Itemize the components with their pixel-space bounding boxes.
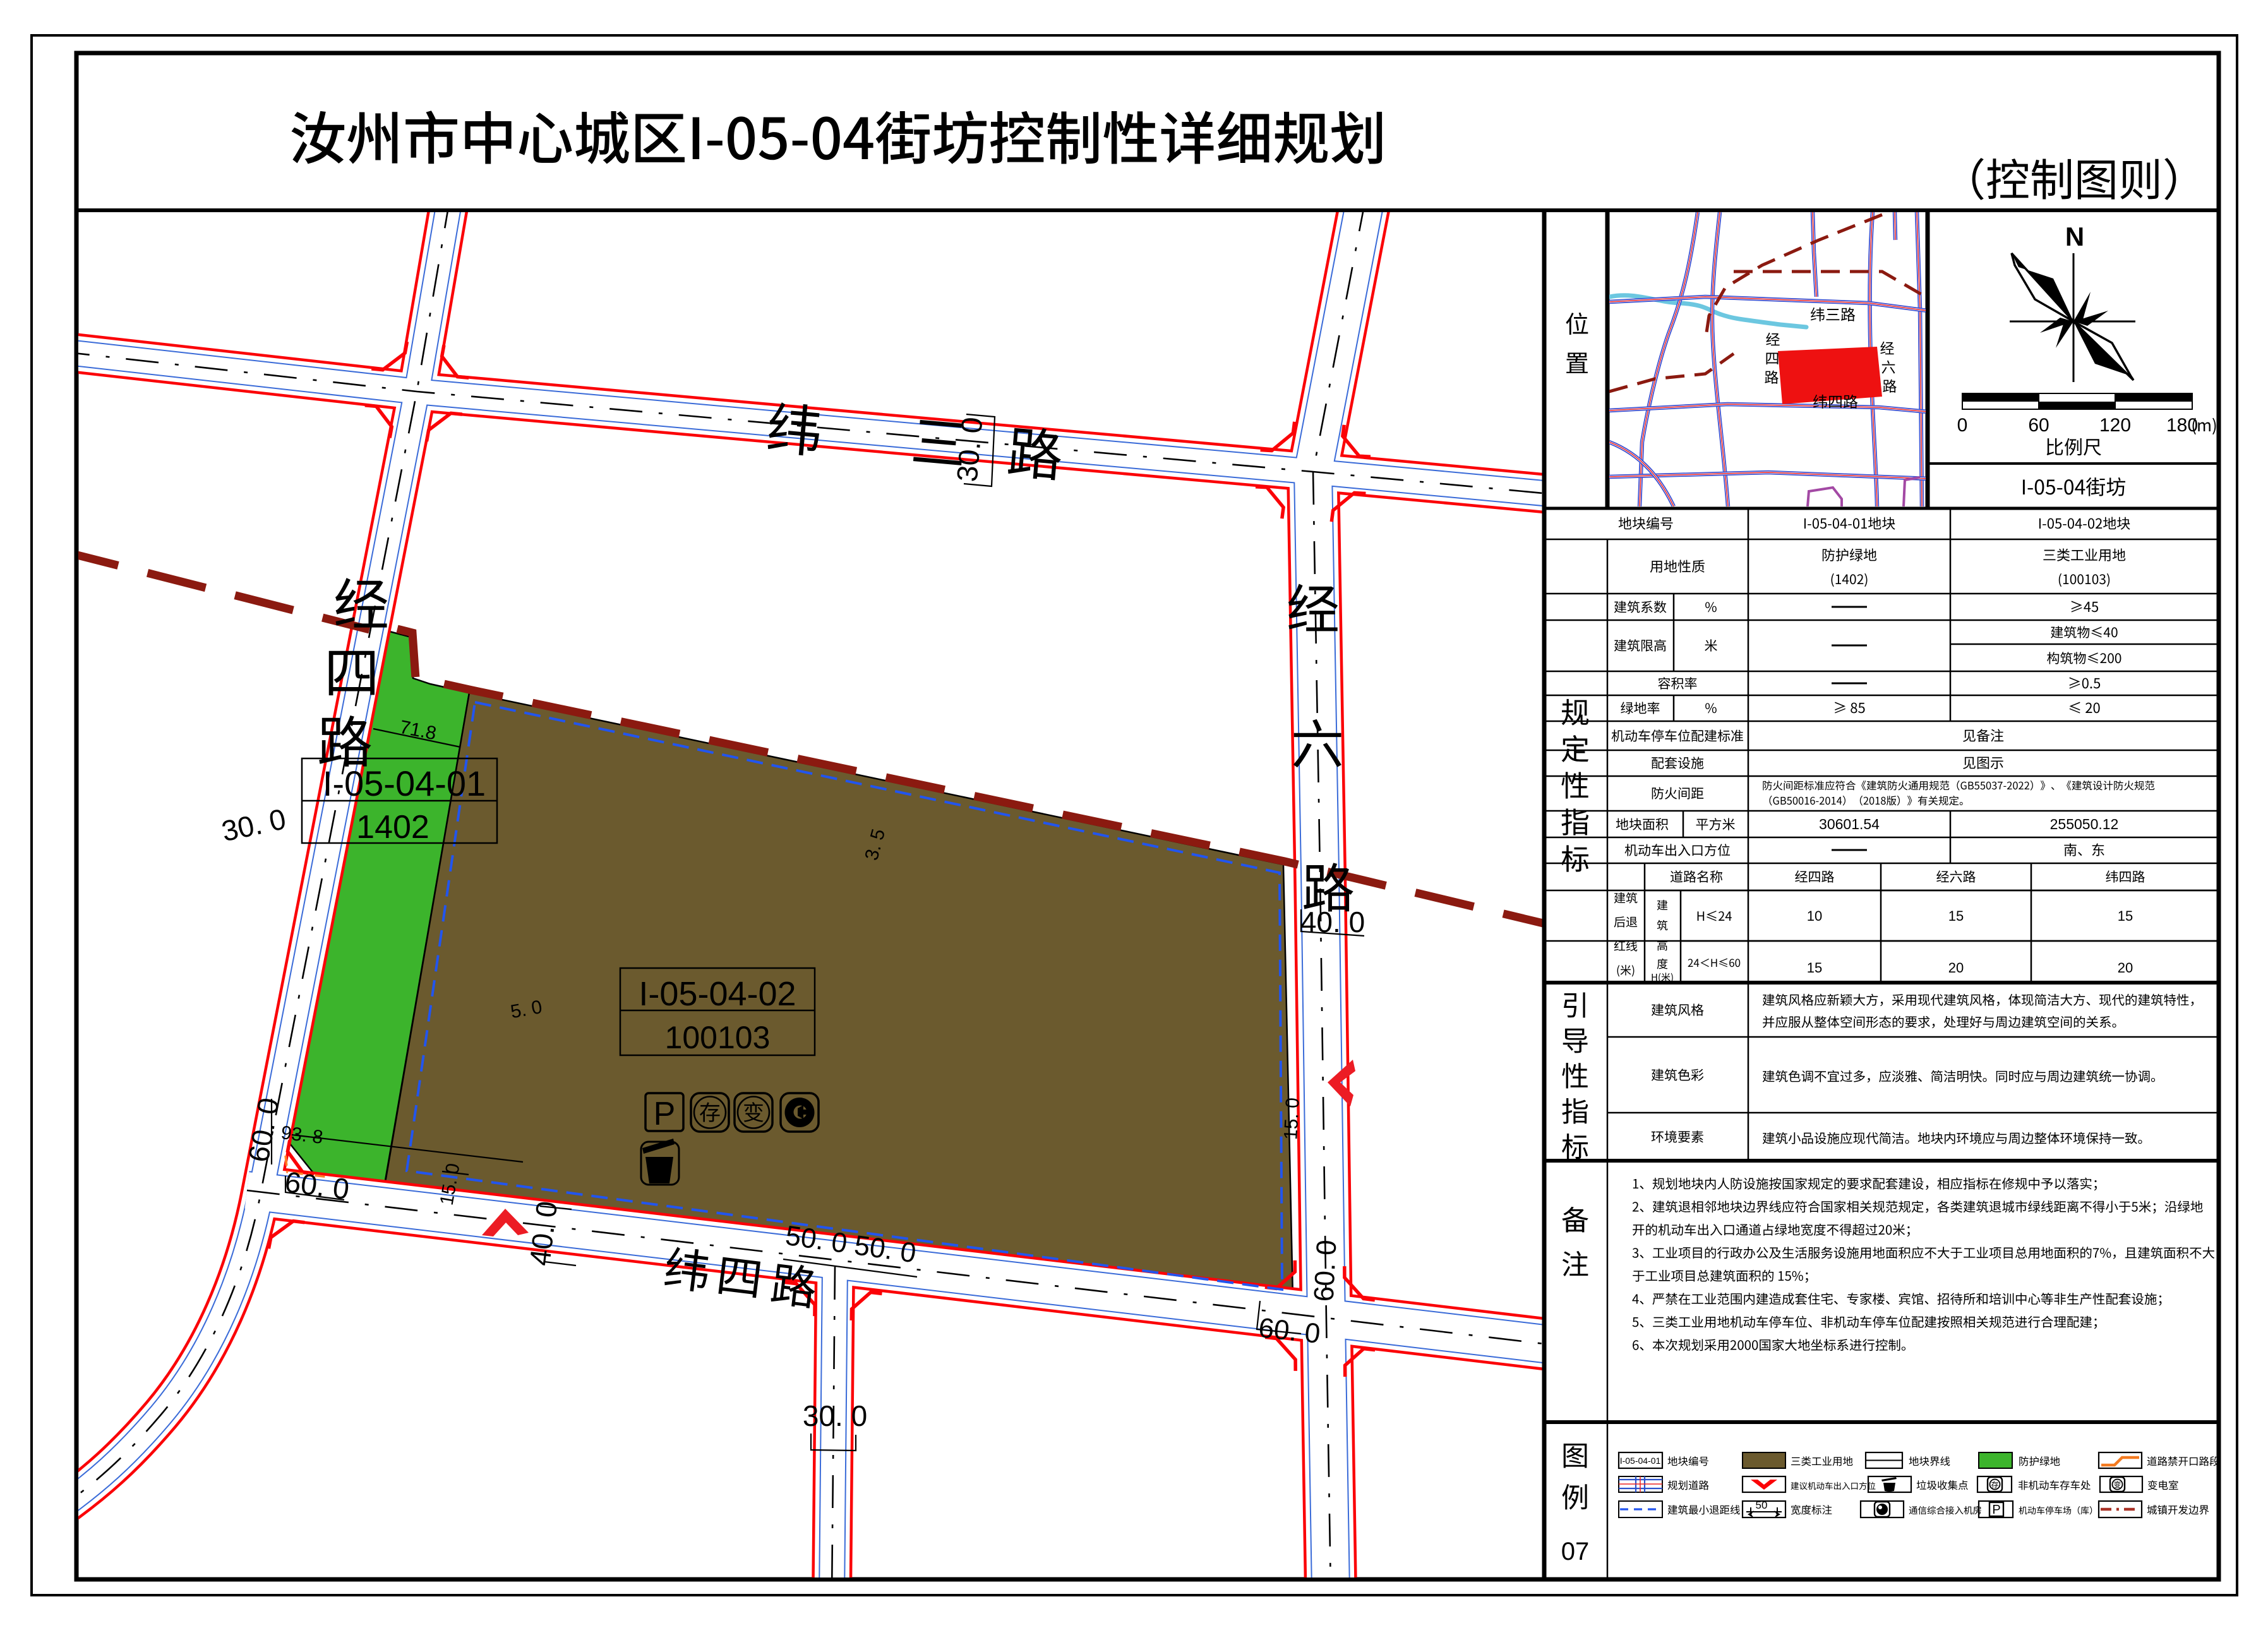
svg-text:20: 20 bbox=[2118, 960, 2133, 976]
svg-text:100103: 100103 bbox=[665, 1020, 771, 1055]
svg-text:I-05-04-01: I-05-04-01 bbox=[1620, 1456, 1661, 1466]
svg-text:40. 0: 40. 0 bbox=[1300, 906, 1365, 938]
svg-text:P: P bbox=[654, 1096, 676, 1132]
svg-text:20: 20 bbox=[1948, 960, 1964, 976]
svg-text:255050.12: 255050.12 bbox=[2050, 816, 2119, 832]
svg-text:1402: 1402 bbox=[356, 809, 429, 846]
svg-text:I-05-04-01: I-05-04-01 bbox=[323, 763, 486, 803]
svg-text:60. 0: 60. 0 bbox=[1257, 1312, 1321, 1350]
svg-text:15: 15 bbox=[2118, 908, 2133, 924]
svg-text:30. 0: 30. 0 bbox=[803, 1399, 867, 1432]
svg-text:120: 120 bbox=[2099, 415, 2131, 436]
svg-text:15: 15 bbox=[1807, 960, 1822, 976]
svg-text:30601.54: 30601.54 bbox=[1819, 816, 1880, 832]
svg-text:60: 60 bbox=[2028, 415, 2049, 436]
svg-text:60. 0: 60. 0 bbox=[1308, 1239, 1342, 1302]
svg-text:I-05-04-02: I-05-04-02 bbox=[639, 975, 796, 1013]
svg-text:07: 07 bbox=[1561, 1538, 1590, 1565]
svg-text:30. 0: 30. 0 bbox=[951, 416, 989, 482]
svg-text:10: 10 bbox=[1807, 908, 1822, 924]
svg-text:50: 50 bbox=[1756, 1499, 1768, 1511]
svg-text:0: 0 bbox=[1957, 415, 1968, 436]
svg-text:15. 0: 15. 0 bbox=[1280, 1097, 1303, 1140]
svg-text:P: P bbox=[1992, 1503, 2000, 1517]
svg-text:N: N bbox=[2065, 222, 2084, 251]
svg-text:15: 15 bbox=[1948, 908, 1964, 924]
